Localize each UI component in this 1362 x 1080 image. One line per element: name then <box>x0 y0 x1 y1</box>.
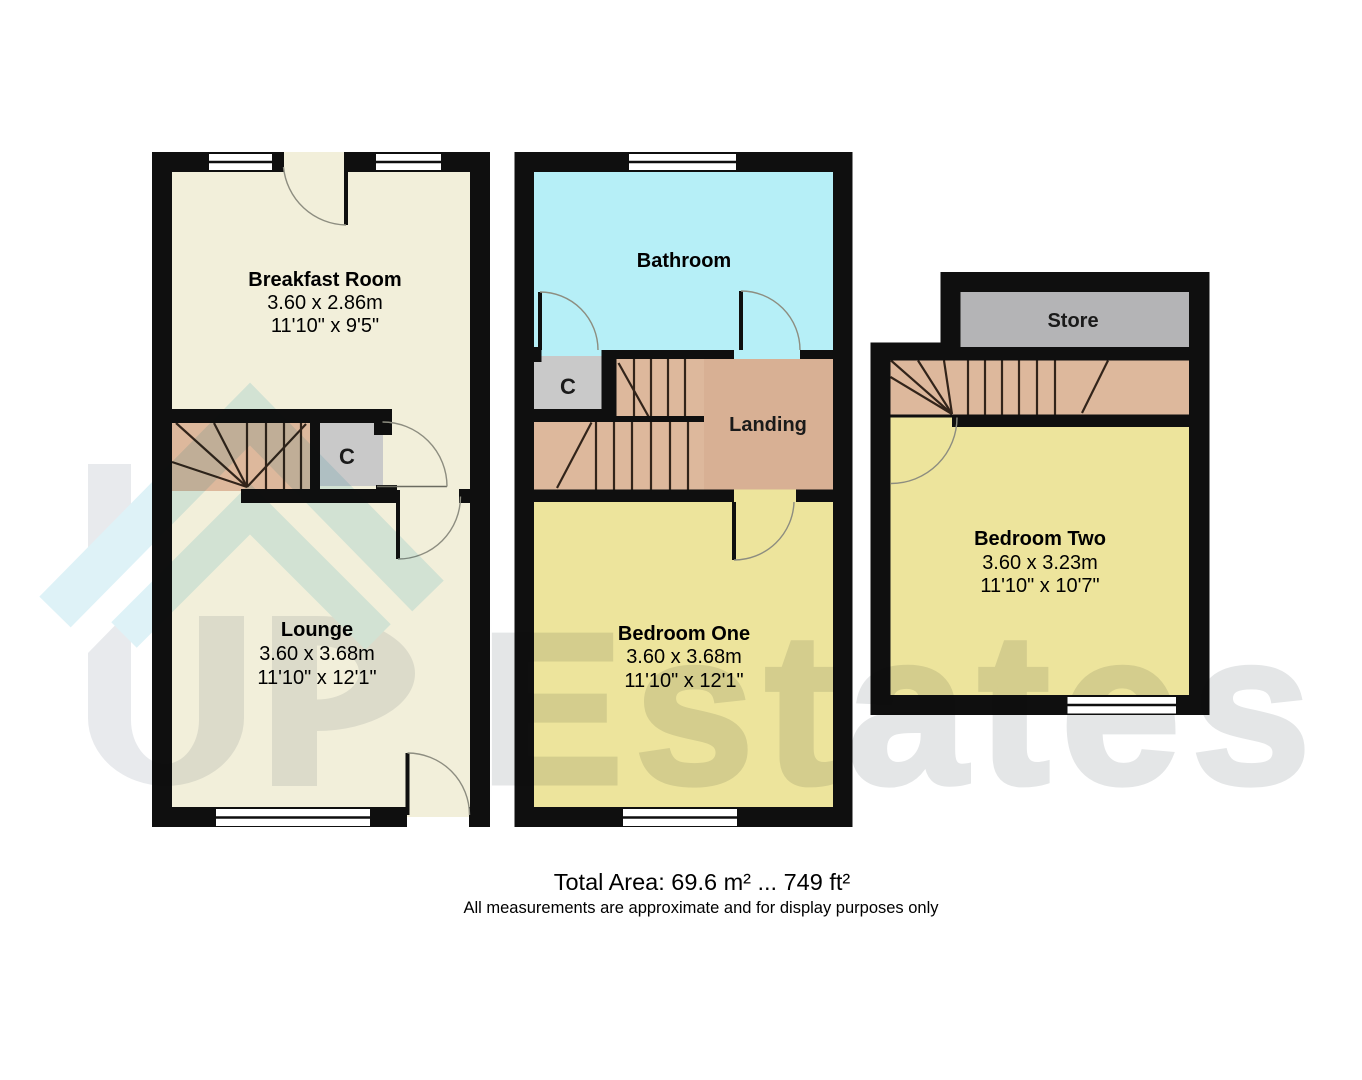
svg-text:Breakfast Room: Breakfast Room <box>248 269 401 291</box>
svg-text:Bedroom Two: Bedroom Two <box>974 528 1106 550</box>
svg-text:Landing: Landing <box>729 414 807 436</box>
svg-text:All measurements are approxima: All measurements are approximate and for… <box>463 899 939 917</box>
svg-text:11'10" x 9'5": 11'10" x 9'5" <box>271 315 379 337</box>
svg-text:C: C <box>339 444 355 469</box>
svg-text:3.60 x 3.23m: 3.60 x 3.23m <box>982 552 1098 574</box>
svg-text:3.60 x 2.86m: 3.60 x 2.86m <box>267 292 383 314</box>
svg-text:Total Area: 69.6 m² ... 749 ft: Total Area: 69.6 m² ... 749 ft² <box>554 869 851 895</box>
svg-text:Estates: Estates <box>480 588 1322 829</box>
svg-text:Store: Store <box>1047 310 1098 332</box>
svg-text:C: C <box>560 374 576 399</box>
svg-text:Bathroom: Bathroom <box>637 250 731 272</box>
